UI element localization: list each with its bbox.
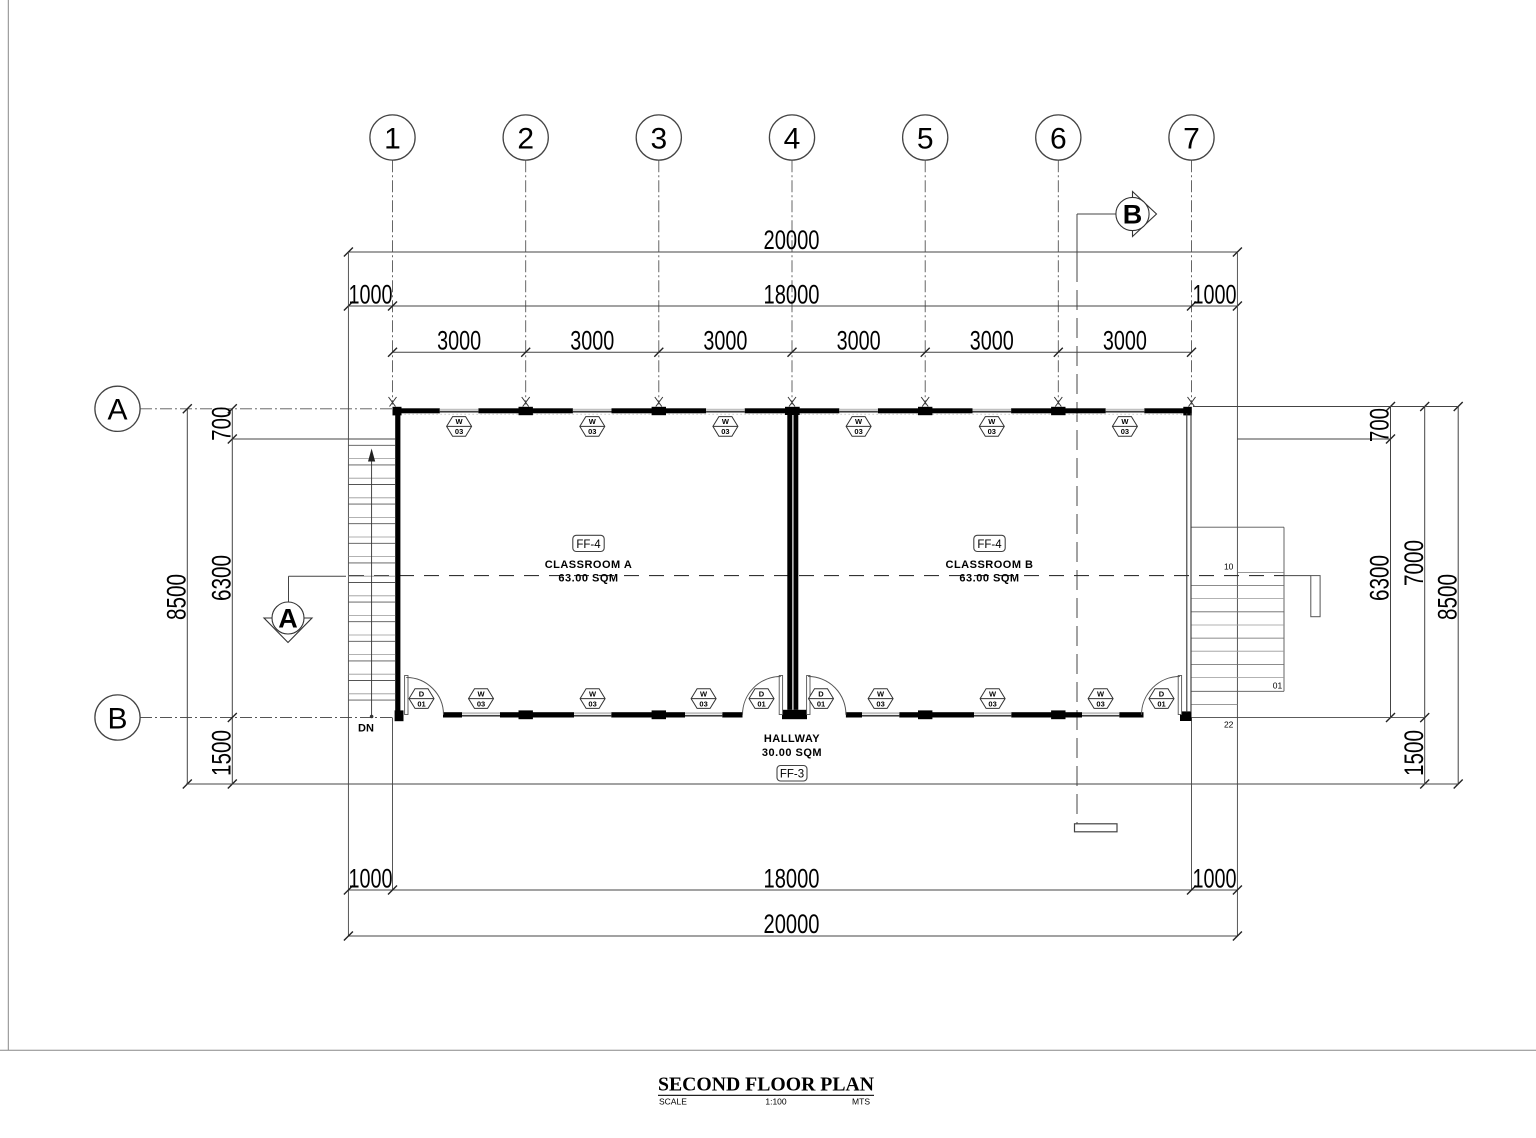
svg-text:8500: 8500 [162,574,192,620]
svg-text:W: W [877,689,885,698]
svg-text:6300: 6300 [207,555,237,601]
svg-text:FF-3: FF-3 [780,769,804,781]
svg-text:4: 4 [784,122,801,155]
svg-text:MTS: MTS [852,1097,870,1107]
svg-text:7: 7 [1183,122,1200,155]
svg-text:CLASSROOM B: CLASSROOM B [946,559,1034,571]
svg-text:W: W [1121,417,1129,426]
svg-text:3000: 3000 [1103,326,1147,356]
svg-text:03: 03 [721,427,729,436]
svg-text:W: W [989,689,997,698]
svg-text:1:100: 1:100 [765,1097,787,1107]
svg-text:DN: DN [358,723,374,735]
svg-text:2: 2 [517,122,534,155]
svg-text:W: W [855,417,863,426]
svg-text:W: W [589,689,597,698]
svg-text:W: W [722,417,730,426]
svg-text:700: 700 [207,407,237,441]
svg-text:20000: 20000 [764,225,820,255]
svg-text:01: 01 [1273,681,1283,691]
svg-text:700: 700 [1365,408,1395,442]
svg-text:1000: 1000 [1193,280,1237,310]
svg-text:D: D [818,689,824,698]
svg-text:8500: 8500 [1433,574,1463,620]
svg-text:3000: 3000 [437,326,481,356]
svg-text:B: B [107,702,127,735]
svg-text:1000: 1000 [1193,864,1237,894]
svg-text:03: 03 [699,699,707,708]
svg-text:01: 01 [1157,699,1165,708]
svg-text:3000: 3000 [970,326,1014,356]
svg-text:3000: 3000 [837,326,881,356]
svg-text:SCALE: SCALE [659,1097,687,1107]
svg-text:1000: 1000 [349,280,393,310]
svg-text:3000: 3000 [570,326,614,356]
svg-text:22: 22 [1224,720,1234,730]
svg-text:63.00 SQM: 63.00 SQM [959,572,1019,584]
svg-text:18000: 18000 [764,280,820,310]
svg-text:1: 1 [384,122,401,155]
svg-text:W: W [589,417,597,426]
svg-text:3: 3 [650,122,667,155]
svg-text:1500: 1500 [1399,730,1429,776]
svg-text:3000: 3000 [703,326,747,356]
svg-text:5: 5 [917,122,934,155]
svg-text:20000: 20000 [764,909,820,939]
svg-text:FF-4: FF-4 [576,539,601,551]
svg-text:01: 01 [817,699,825,708]
svg-text:03: 03 [1096,699,1104,708]
svg-text:03: 03 [1121,427,1129,436]
svg-text:W: W [477,689,485,698]
svg-text:W: W [456,417,464,426]
svg-text:63.00 SQM: 63.00 SQM [558,572,618,584]
svg-text:W: W [988,417,996,426]
svg-text:A: A [278,604,298,634]
svg-text:03: 03 [988,427,996,436]
svg-text:03: 03 [455,427,463,436]
svg-text:03: 03 [588,427,596,436]
svg-text:18000: 18000 [764,864,820,894]
svg-text:W: W [700,689,708,698]
svg-text:SECOND FLOOR PLAN: SECOND FLOOR PLAN [658,1074,875,1096]
svg-text:03: 03 [477,699,485,708]
svg-text:10: 10 [1224,562,1234,572]
svg-text:D: D [1159,689,1165,698]
svg-text:B: B [1123,200,1143,230]
svg-text:03: 03 [854,427,862,436]
svg-text:01: 01 [417,699,425,708]
svg-text:6: 6 [1050,122,1067,155]
svg-text:HALLWAY: HALLWAY [764,733,820,745]
svg-text:W: W [1097,689,1105,698]
svg-text:A: A [107,394,127,427]
svg-text:D: D [759,689,765,698]
svg-text:03: 03 [988,699,996,708]
svg-text:03: 03 [588,699,596,708]
svg-text:03: 03 [876,699,884,708]
svg-text:7000: 7000 [1399,540,1429,586]
svg-text:6300: 6300 [1365,555,1395,601]
svg-text:1500: 1500 [207,730,237,776]
svg-text:CLASSROOM A: CLASSROOM A [545,559,633,571]
svg-text:30.00 SQM: 30.00 SQM [762,747,822,759]
svg-text:01: 01 [757,699,765,708]
svg-text:D: D [419,689,425,698]
svg-text:1000: 1000 [349,864,393,894]
svg-text:FF-4: FF-4 [977,539,1002,551]
